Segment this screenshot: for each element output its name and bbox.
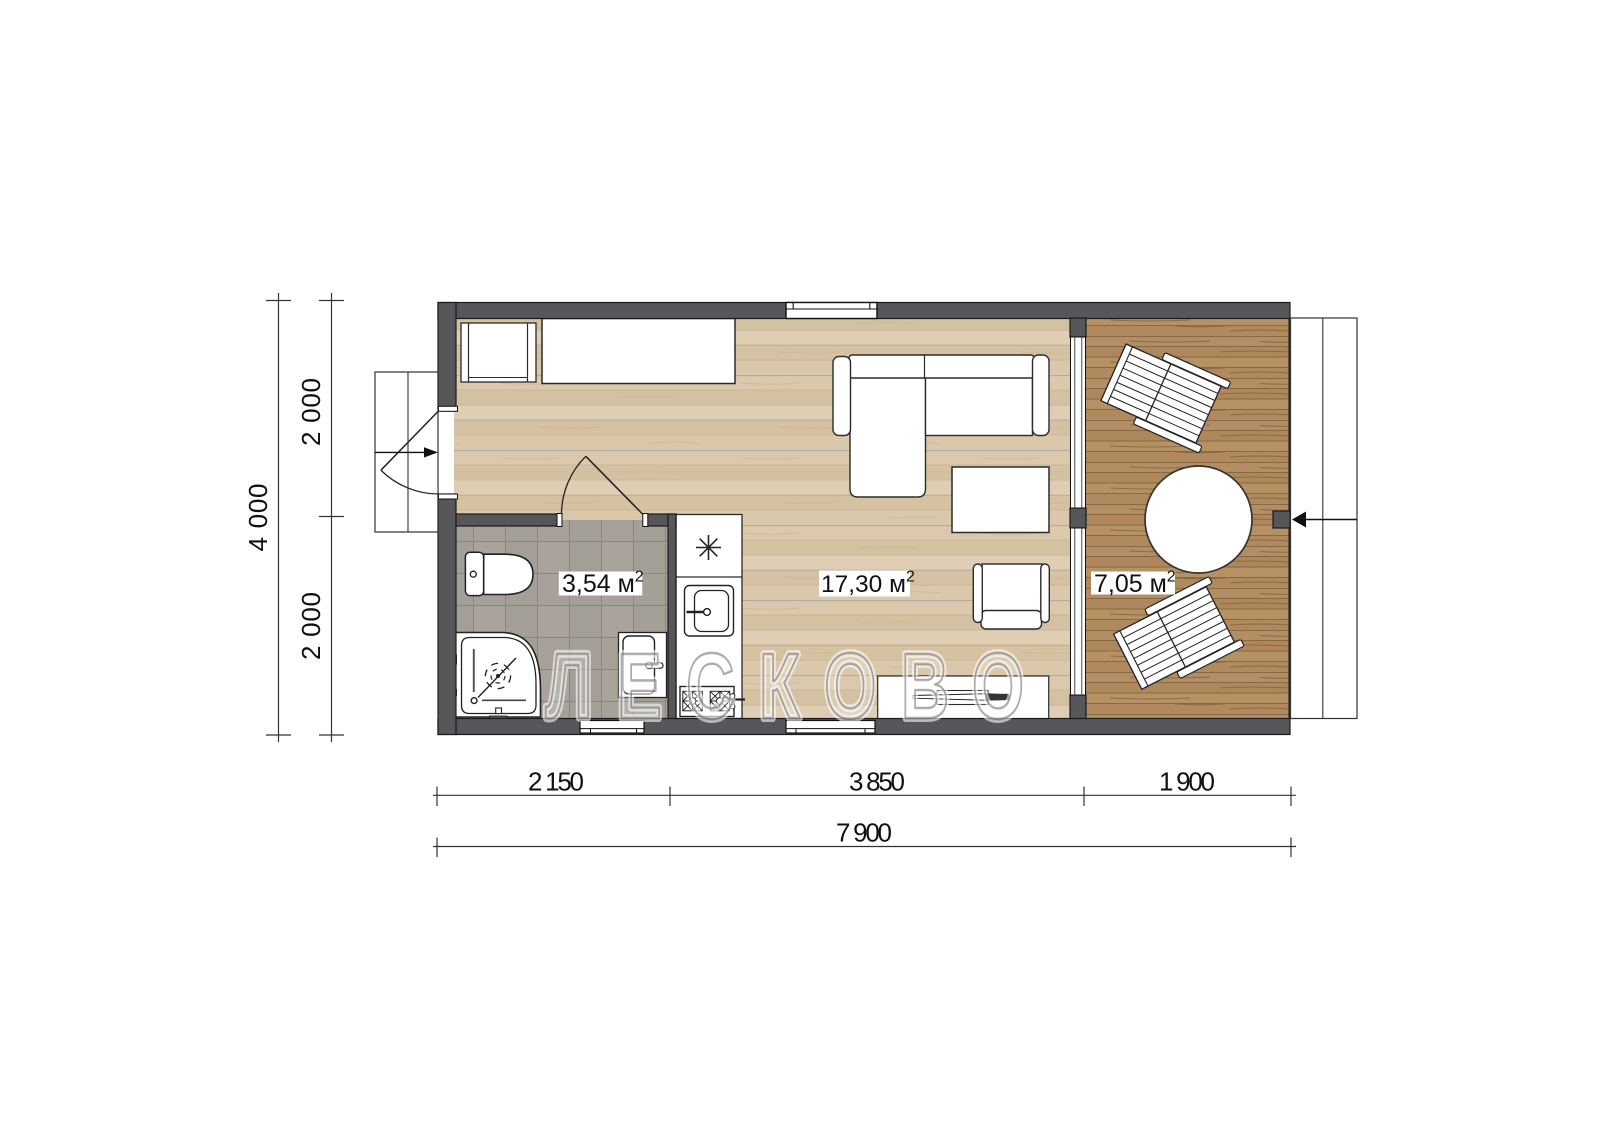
- svg-text:4 000: 4 000: [243, 484, 273, 552]
- svg-text:3 850: 3 850: [849, 767, 905, 797]
- svg-text:2 000: 2 000: [296, 378, 326, 446]
- svg-text:3,54 м2: 3,54 м2: [562, 569, 644, 599]
- svg-text:7,05 м2: 7,05 м2: [1094, 569, 1176, 599]
- svg-text:7 900: 7 900: [836, 818, 892, 848]
- svg-text:1 900: 1 900: [1159, 767, 1215, 797]
- svg-text:17,30 м2: 17,30 м2: [821, 569, 915, 599]
- svg-text:2 150: 2 150: [528, 767, 584, 797]
- svg-text:ЛЕСКОВО: ЛЕСКОВО: [546, 635, 1049, 738]
- svg-text:2 000: 2 000: [296, 592, 326, 660]
